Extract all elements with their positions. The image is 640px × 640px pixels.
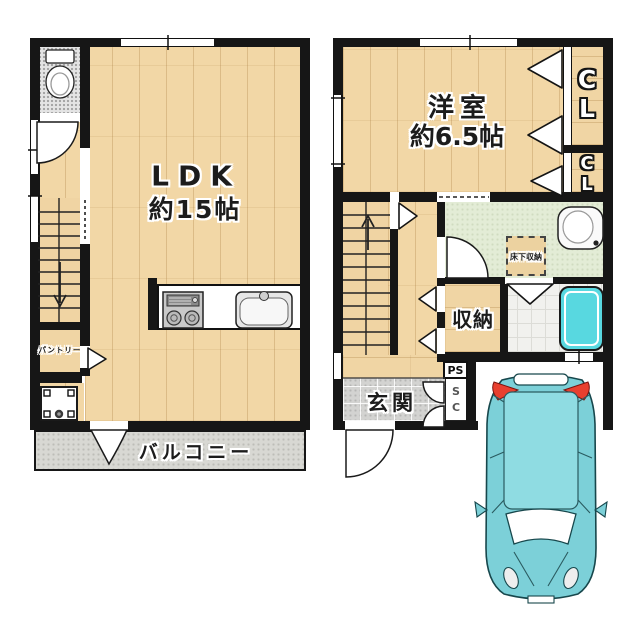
pipe-space-label: PS [448,364,464,377]
balcony-label: バルコニー [139,438,254,465]
balcony-doorway [90,421,128,430]
wall [30,421,310,430]
wall [333,421,345,430]
window [333,95,342,167]
car-headlight-right [561,565,581,590]
hall-1f-lower [343,355,445,380]
storage-doorway-lower [437,328,445,354]
window [333,353,342,379]
car-mirror-left [475,502,487,517]
kitchen-stub-wall [148,278,157,330]
toilet-doorway [38,113,82,122]
wall [333,192,390,202]
window [30,120,39,174]
floorplan: PS [0,0,640,640]
shoe-closet-label: SC [450,385,463,417]
wall [80,368,90,376]
car-taillight-left [493,382,518,400]
car-rear-window [514,374,568,385]
car-pillars [490,395,592,513]
bathroom [503,283,603,352]
storage-label: 収納 [452,304,494,333]
kitchen-counter [157,284,303,330]
wall [553,277,603,284]
room-ldk [85,47,303,421]
wall [399,192,437,202]
window [565,352,593,362]
window [121,38,214,47]
wall [30,372,82,383]
window [420,38,517,47]
car-roof [504,392,578,509]
closet-upper-label: CL [573,65,602,123]
car-mirror-right [595,502,607,517]
washroom-doorway [437,237,445,278]
wall [437,277,505,284]
closet-door-track [563,47,572,192]
car-top-view-icon [475,374,607,603]
western-room-size-label: 約6.5帖 [410,117,504,153]
wall [80,330,90,346]
entrance-doorway [345,421,395,430]
wall [30,322,90,330]
ldk-label: LDK [151,160,241,193]
wall [390,228,398,355]
closet-lower-label: CL [577,153,598,195]
wall [300,38,310,430]
stairs-1f [343,202,390,357]
entrance-label: 玄関 [367,387,417,417]
stairs-2f [38,198,84,324]
hall-2f [38,113,84,202]
car-body [486,375,596,599]
laundry-nook [38,383,84,422]
car-headlight-left [501,565,521,590]
wall [80,47,90,148]
pantry-label: パントリー [39,345,82,356]
car-hood-lines [514,552,568,586]
car-taillight-right [564,382,589,400]
wall [500,283,508,352]
pipe-space: PS [443,361,468,379]
room-toilet [38,47,84,117]
storage-doorway-upper [437,286,445,312]
stair-rail-opening [80,198,90,244]
ldk-size-label: 約15帖 [149,190,242,226]
wall [80,242,90,322]
entrance-door [346,430,393,477]
underfloor-storage-label: 床下収納 [510,252,542,263]
window [30,196,39,242]
dashed-opening [437,193,490,202]
car-front-plate [528,596,554,603]
car-windshield [506,509,576,544]
wall [603,38,613,430]
hall-opening [80,148,90,198]
western-room-doorway [390,193,399,229]
closet-divider-wall [563,145,613,153]
wall [437,202,445,237]
bathroom-doorway [505,278,553,284]
